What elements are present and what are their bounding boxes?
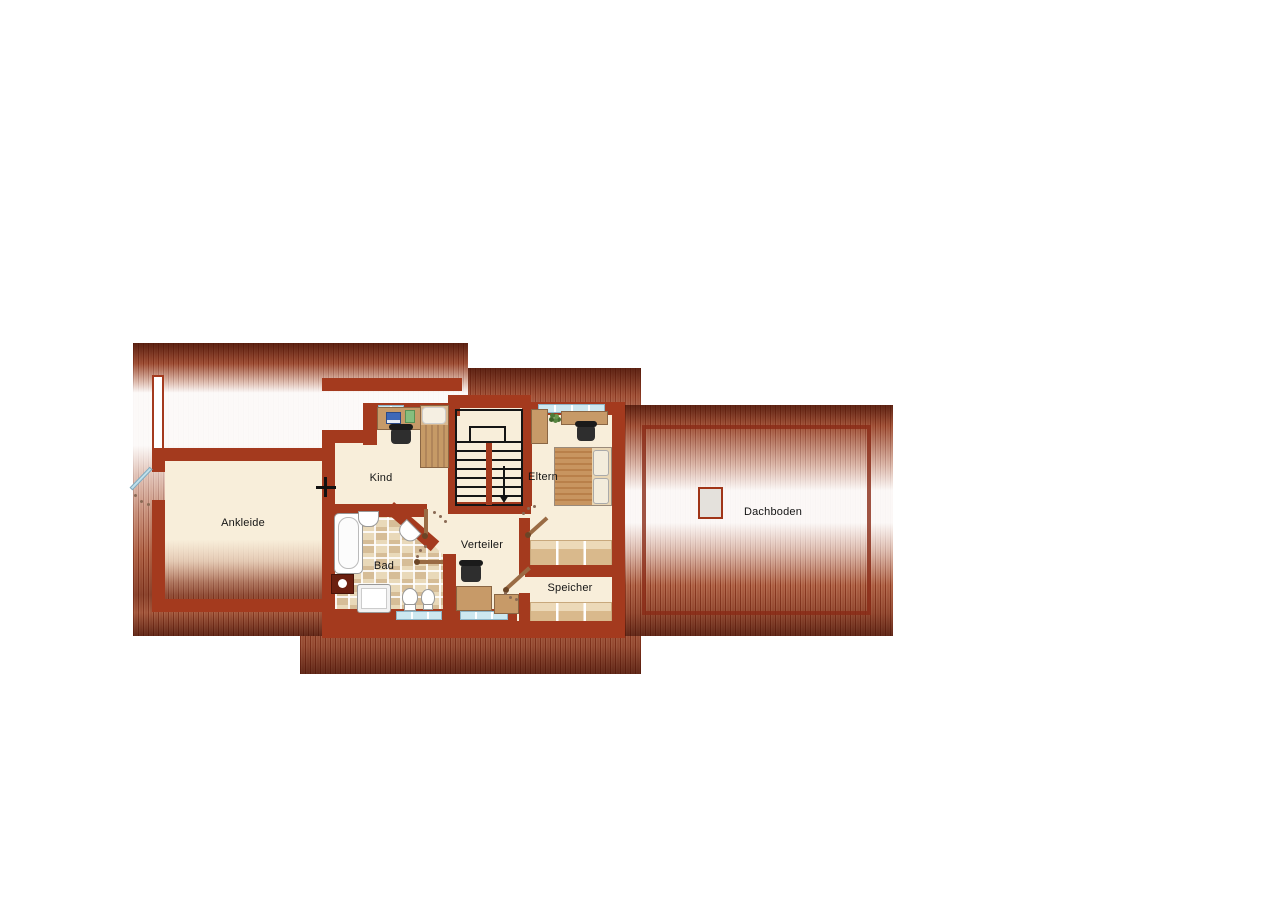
shower [357, 584, 391, 613]
wall-ankleide-bottom [152, 599, 322, 612]
wall-ankleide-left-lower [152, 500, 165, 612]
bidet-base [423, 604, 433, 610]
bad-window [396, 611, 442, 620]
bathtub-basin [338, 517, 359, 569]
plant [550, 413, 555, 418]
bad-door-leaf [417, 560, 443, 564]
eltern-wardrobe [531, 409, 548, 444]
door-swing-dot [416, 555, 419, 558]
eltern-door-knob [525, 532, 531, 538]
door-swing-dot [424, 545, 427, 548]
door-swing-dot [439, 515, 442, 518]
wall-bad-right [443, 554, 456, 624]
kind-bed-blanket [421, 425, 448, 467]
door-swing-dot [509, 596, 512, 599]
door-swing-dot [444, 520, 447, 523]
eltern-kneewall-cabinets [530, 540, 612, 567]
door-swing-dot [140, 500, 143, 503]
kind-door-knob [422, 533, 428, 539]
door-swing-dot [147, 503, 150, 506]
kind-office-chair [391, 428, 411, 444]
eltern-office-chair [577, 425, 595, 441]
staircase-landing [469, 426, 506, 443]
wall-ankleide-left-upper [152, 448, 165, 472]
kind-door-leaf [424, 509, 428, 535]
bad-door-knob [414, 559, 420, 565]
verteiler-office-chair [461, 564, 481, 582]
wall-main-bottom [322, 621, 625, 638]
room-label-bad: Bad [374, 560, 394, 572]
wall-ankleide-top [152, 448, 322, 461]
room-label-ankleide: Ankleide [221, 517, 265, 529]
floorplan-canvas: Ankleide Kind Eltern Bad Verteiler Speic… [0, 0, 1280, 905]
door-swing-dot [433, 511, 436, 514]
door-swing-dot [515, 598, 518, 601]
eltern-bed-slats [555, 448, 592, 505]
eltern-bed-pillow-1 [593, 450, 609, 476]
room-ankleide-floor [165, 461, 322, 604]
chimney-flue-pipe [338, 579, 347, 588]
door-swing-dot [134, 494, 137, 497]
door-swing-dot [527, 507, 530, 510]
wall-main-top [322, 378, 462, 391]
room-label-kind: Kind [370, 472, 393, 484]
skylight [698, 487, 723, 519]
eltern-bed-pillow-2 [593, 478, 609, 504]
kind-laptop [386, 412, 401, 424]
room-label-eltern: Eltern [528, 471, 558, 483]
kind-bed-pillow [422, 407, 446, 424]
verteiler-desk [456, 586, 492, 611]
wall-speicher-left [519, 593, 530, 625]
room-label-dachboden: Dachboden [744, 506, 802, 518]
kind-notepad [405, 410, 415, 423]
door-swing-dot [522, 512, 525, 515]
verteiler-cabinet [494, 594, 519, 614]
wall-speicher-top [525, 565, 625, 577]
wall-stair-top [448, 395, 531, 408]
wall-cross-marker-v [324, 477, 327, 497]
door-swing-dot [419, 549, 422, 552]
room-label-speicher: Speicher [547, 582, 592, 594]
wall-main-right [612, 402, 625, 638]
door-swing-dot [504, 592, 507, 595]
room-label-verteiler: Verteiler [461, 539, 503, 551]
dachboden-boundary [642, 425, 871, 615]
toilet-tank [404, 604, 416, 611]
door-swing-dot [533, 505, 536, 508]
chimney-shaft [152, 375, 164, 451]
stairs-direction-line [503, 466, 505, 497]
stairs-down-arrow-icon [499, 495, 509, 503]
sink [358, 511, 379, 527]
staircase-divider [486, 441, 492, 505]
